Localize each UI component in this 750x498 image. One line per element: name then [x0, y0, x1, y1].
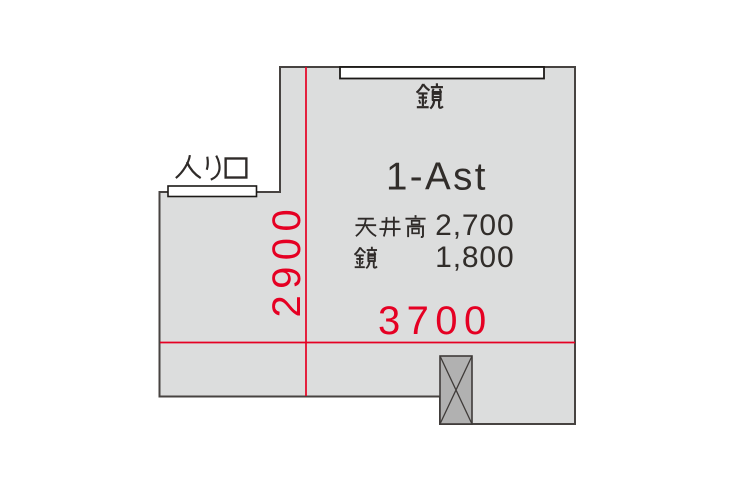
svg-text:2900: 2900 — [265, 203, 309, 318]
svg-text:2,700: 2,700 — [435, 209, 514, 242]
svg-text:3700: 3700 — [378, 299, 493, 343]
svg-text:1-Ast: 1-Ast — [386, 156, 488, 199]
svg-text:1,800: 1,800 — [435, 241, 514, 274]
